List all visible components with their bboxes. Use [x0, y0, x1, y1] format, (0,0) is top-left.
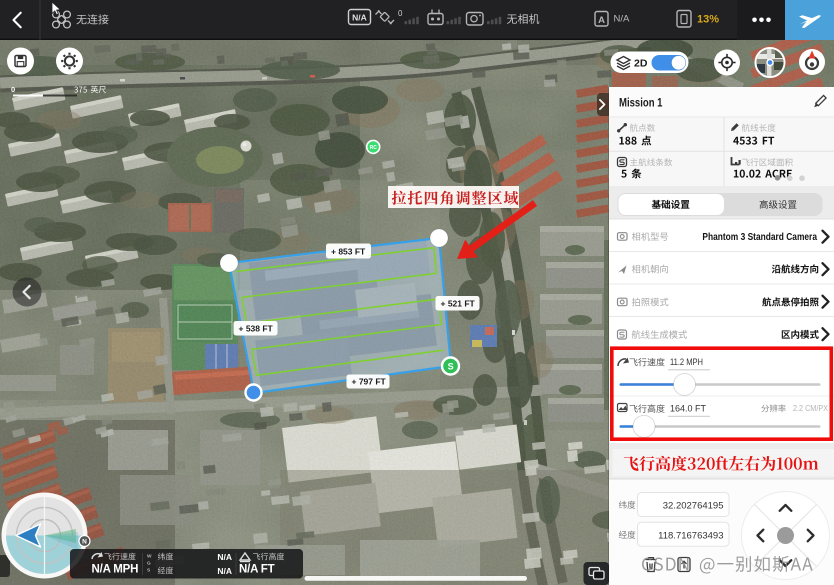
svg-text:N/A MPH: N/A MPH	[92, 564, 139, 576]
svg-text:N/A FT: N/A FT	[239, 564, 275, 576]
svg-text:N/A: N/A	[614, 14, 631, 25]
svg-text:Phantom 3 Standard Camera: Phantom 3 Standard Camera	[702, 232, 817, 243]
svg-text:RC: RC	[370, 145, 378, 151]
svg-text:Mission 1: Mission 1	[619, 96, 663, 110]
svg-text:N/A: N/A	[352, 13, 367, 23]
svg-text:32.202764195: 32.202764195	[663, 500, 724, 511]
svg-text:A: A	[598, 15, 605, 26]
svg-text:S: S	[448, 362, 454, 372]
svg-text:W: W	[147, 554, 152, 560]
svg-text:13%: 13%	[697, 14, 719, 26]
svg-text:0: 0	[11, 85, 15, 94]
svg-text:2.2 CM/PX: 2.2 CM/PX	[793, 403, 828, 413]
svg-text:11.2 MPH: 11.2 MPH	[670, 357, 703, 367]
svg-text:0: 0	[398, 9, 403, 18]
svg-text:G: G	[147, 561, 151, 567]
svg-text:+ 853 FT: + 853 FT	[331, 247, 366, 257]
svg-text:+ 797 FT: + 797 FT	[352, 377, 387, 387]
svg-text:164.0 FT: 164.0 FT	[670, 404, 706, 414]
svg-text:2D: 2D	[634, 58, 648, 70]
svg-text:N/A: N/A	[217, 552, 232, 562]
svg-text:+ 538 FT: + 538 FT	[239, 324, 274, 334]
svg-text:N: N	[82, 538, 87, 545]
svg-text:N/A: N/A	[217, 566, 232, 576]
svg-text:+ 521 FT: + 521 FT	[441, 299, 476, 309]
svg-text:118.716763493: 118.716763493	[658, 530, 723, 541]
